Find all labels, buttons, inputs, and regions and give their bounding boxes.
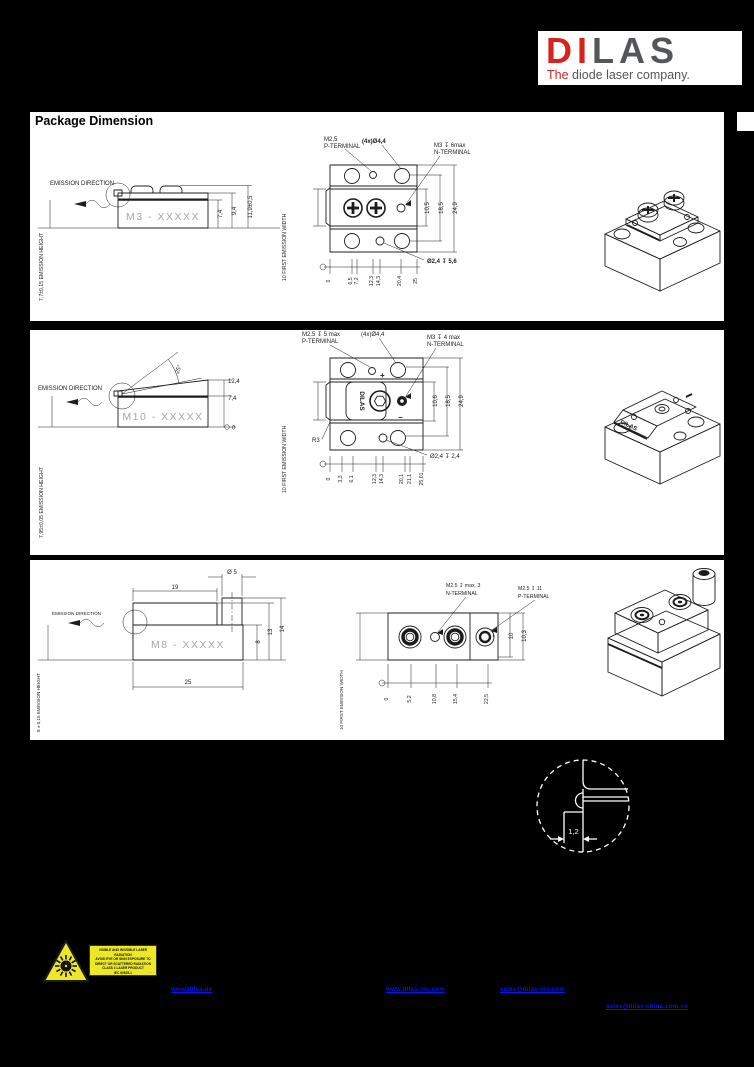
footer-link-sales-china[interactable]: sales@dilas-china.com.cn (606, 1004, 688, 1010)
emitter-detail-view: 1,2 (528, 755, 644, 863)
svg-text:12,3: 12,3 (372, 474, 378, 484)
m3-dim-249: 24,9 (453, 202, 459, 214)
m3-p-terminal-label-1: M2,5 (324, 137, 338, 143)
section-header-bar: Package Dimension (30, 112, 724, 131)
detail-dimension: 1,2 (550, 827, 597, 842)
m10-bottom-scale-labels: 0 3,3 6,1 12,3 14,3 20,1 21,1 25,01 (326, 472, 425, 485)
m10-dim-249: 24,9 (459, 395, 465, 407)
mount-hole (345, 234, 360, 249)
iso-hole (688, 417, 704, 427)
m10-emission-width-label: 10 FIRST EMISSION WIDTH (282, 425, 288, 493)
svg-text:12,3: 12,3 (369, 276, 375, 286)
datasheet-page: DILAS The diode laser company. Package D… (0, 0, 754, 1067)
logo-las: LAS (592, 30, 679, 71)
footer-link-dilas-de[interactable]: www.dilas.de (171, 987, 212, 993)
iso-center-screw (655, 405, 669, 414)
dilas-logo: DILAS The diode laser company. (538, 31, 742, 85)
m3-side-view: EMISSION DIRECTION M3 - XXXXX (38, 181, 280, 301)
m8-dim-pin: Ø 5 (227, 570, 237, 576)
page-title: Package Dimension (30, 112, 724, 131)
m8-model-label: M8 - XXXXX (151, 639, 225, 651)
m10-counterbore-label: Ø2,4 ↧ 2,4 (430, 453, 460, 460)
n-terminal-hole (431, 633, 440, 642)
laser-warning-label: VISIBLE AND INVISIBLE LASER RADIATION AV… (89, 945, 157, 976)
header-corner-block (737, 112, 754, 131)
m8-iso-top-face (615, 590, 708, 633)
svg-text:6,1: 6,1 (349, 475, 355, 482)
iso-terminal-cylinder (693, 569, 715, 606)
m8-top-dimension-lines (356, 613, 525, 688)
iso-center-screw-inner (659, 407, 665, 411)
svg-text:7,2: 7,2 (354, 277, 360, 284)
m8-p-terminal-ring (476, 628, 494, 646)
m3-drawing: EMISSION DIRECTION M3 - XXXXX (30, 131, 724, 321)
m3-package-panel: EMISSION DIRECTION M3 - XXXXX (30, 131, 724, 321)
m3-dim-74: 7,4 (218, 209, 224, 218)
svg-text:14,3: 14,3 (376, 276, 382, 286)
m8-side-view: EMISSION DIRECTION (36, 570, 286, 732)
logo-tagline: The diode laser company. (538, 68, 742, 82)
m10-grooves (330, 379, 423, 423)
m10-n-terminal-label-1: M3 ↧ 4 max (427, 334, 460, 341)
m10-holes-label: (4x)Ø4,4 (361, 332, 385, 338)
m10-dim-74: 7,4 (228, 396, 237, 402)
m3-top-dimension-lines (313, 165, 457, 274)
m10-emission-direction-label: EMISSION DIRECTION (38, 386, 102, 392)
iso-hole (659, 619, 665, 625)
svg-text:20,4: 20,4 (397, 276, 403, 286)
m8-upper-block (133, 603, 217, 625)
m10-iso-view: DILAS (605, 391, 720, 484)
m10-p-terminal-label-2: P-TERMINAL (302, 339, 339, 345)
iso-hole (674, 238, 687, 247)
m10-front-notch (326, 382, 330, 420)
mount-hole (391, 363, 406, 378)
mount-hole (341, 363, 356, 378)
m10-drawing: EMISSION DIRECTION 25° (30, 330, 724, 555)
detail-dim-12: 1,2 (568, 827, 578, 836)
m8-emission-direction-label: EMISSION DIRECTION (52, 611, 101, 616)
label-dots: · · · (149, 971, 154, 975)
m10-model-label: M10 - XXXXX (122, 411, 203, 423)
m8-screw-ring (399, 626, 421, 648)
svg-text:21,1: 21,1 (407, 474, 413, 484)
mount-hole (395, 169, 410, 184)
m10-dilas-mark: DILAS (358, 391, 365, 411)
m3-top-plate (118, 193, 208, 199)
m10-dim-106: 10,6 (433, 395, 439, 407)
m3-emission-height-label: 7,7±0,15 EMISSION HEIGHT (39, 232, 45, 301)
m8-package-panel: EMISSION DIRECTION (30, 560, 724, 740)
svg-text:10,8: 10,8 (432, 694, 438, 704)
m8-emitter-detail-circle (123, 610, 147, 634)
m10-side-view: EMISSION DIRECTION 25° (38, 352, 240, 538)
m10-angle-construction (122, 352, 202, 394)
m10-radius-label: R3 (312, 438, 320, 444)
m8-p-terminal-label-1: M2.5 ↧ 11 (518, 586, 542, 592)
m10-emission-height-label: 7,95±0,05 EMISSION HEIGHT (39, 466, 45, 538)
footer-link-sales-inc[interactable]: sales@dilas-inc.com (500, 987, 565, 993)
detail-lens (576, 793, 584, 808)
m10-package-panel: EMISSION DIRECTION 25° (30, 330, 724, 555)
svg-text:14,3: 14,3 (379, 474, 385, 484)
svg-text:22,5: 22,5 (484, 694, 490, 704)
m10-n-terminal-label-2: N-TERMINAL (427, 342, 464, 348)
m8-emission-width-label: 10 FIRST EMISSION WIDTH (339, 670, 344, 730)
m8-screw-ring (444, 626, 466, 648)
m3-dim-94: 9,4 (232, 206, 238, 215)
iso-hole (674, 398, 679, 403)
plus-mark: + (380, 371, 385, 380)
m8-dim-19: 19 (172, 585, 179, 591)
m8-dim-10: 10 (509, 632, 515, 639)
m10-top-view: + DILAS − M2.5 ↧ 5 max P-TERMINAL (4x)Ø4… (282, 331, 465, 493)
svg-text:0: 0 (326, 279, 332, 282)
m8-emission-height-label: 8 ± 0,15 EMISSION HEIGHT (36, 673, 41, 732)
detail-section-outline (564, 760, 628, 852)
index-hole (379, 434, 387, 442)
iso-hole (688, 223, 704, 233)
m8-dim-13: 13 (268, 628, 274, 635)
m8-dim-25: 25 (185, 680, 192, 686)
svg-text:25: 25 (413, 278, 419, 284)
m8-dim-103: 10,3 (522, 630, 528, 642)
svg-text:25,01: 25,01 (419, 472, 425, 485)
m3-screw-1 (131, 186, 153, 193)
m3-model-label: M3 - XXXXX (126, 211, 200, 223)
m8-bottom-scale-labels: 0 5,2 10,8 15,4 22,5 (384, 694, 490, 704)
m8-dim-14: 14 (280, 625, 286, 632)
m8-n-terminal-label-1: M2.5 ↧ max. 3 (446, 583, 480, 589)
m3-holes-label: (4x)Ø4,4 (362, 139, 386, 145)
m10-dim-0: 0 (232, 426, 236, 432)
m8-n-terminal-label-2: N-TERMINAL (446, 591, 478, 597)
m3-bottom-scale-labels: 0 6,5 7,2 12,3 14,3 20,4 25 (326, 276, 419, 286)
m10-angle-label: 25° (174, 364, 184, 375)
mount-hole (395, 234, 410, 249)
m3-dim-119: 11,9±0,5 (248, 195, 254, 219)
index-hole (376, 237, 384, 245)
m3-dim-105: 10,5 (425, 202, 431, 214)
m8-p-terminal-label-2: P-TERMINAL (518, 594, 550, 600)
minus-mark: − (398, 413, 403, 422)
m8-drawing: EMISSION DIRECTION (30, 560, 724, 740)
logo-di: DI (546, 30, 592, 71)
m3-emission-width-label: 10 FIRST EMISSION WIDTH (282, 213, 288, 281)
svg-text:3,3: 3,3 (338, 475, 344, 482)
svg-text:0: 0 (384, 697, 390, 700)
emission-arrow-icon (66, 399, 78, 405)
m3-iso-view (605, 191, 720, 291)
m8-top-view: M2.5 ↧ max. 3 N-TERMINAL M2.5 ↧ 11 P-TER… (339, 583, 550, 730)
m3-n-terminal-label-2: N-TERMINAL (434, 150, 471, 156)
iso-screw (631, 608, 653, 623)
emission-arrow-icon (74, 201, 86, 207)
m3-counterbore-label: Ø2,4 ↧ 5,6 (427, 258, 457, 265)
svg-text:5,2: 5,2 (407, 695, 413, 702)
m10-dim-185: 18,5 (446, 395, 452, 407)
m3-dim-185: 18,5 (439, 202, 445, 214)
m10-dim-124: 12,4 (228, 379, 240, 385)
iso-screw (638, 203, 658, 222)
n-terminal-center (400, 399, 404, 403)
laser-warning-icon (42, 938, 90, 984)
hex-socket (375, 396, 386, 406)
n-terminal-hole (397, 204, 405, 212)
mount-hole (341, 431, 356, 446)
mount-hole (345, 169, 360, 184)
m10-p-terminal-label-1: M2.5 ↧ 5 max (302, 331, 340, 338)
m8-leader-lines (438, 597, 535, 632)
footer-link-dilas-inc[interactable]: www.dilas-inc.com (386, 987, 445, 993)
m10-wedge-top (118, 380, 208, 396)
m10-center-screw (370, 391, 390, 411)
p-terminal-hole (369, 368, 376, 375)
m3-n-terminal-label-1: M3 ↧ 6max (434, 142, 465, 149)
m3-top-view: M2,5 P-TERMINAL (4x)Ø4,4 M3 ↧ 6max N-TER… (282, 137, 471, 286)
m8-iso-view (608, 569, 720, 697)
iso-hole (674, 432, 686, 440)
iso-hole (614, 229, 630, 239)
m3-p-terminal-label-2: P-TERMINAL (324, 144, 361, 150)
mount-hole (391, 431, 406, 446)
m3-screw-2 (160, 186, 182, 193)
p-terminal-hole (370, 172, 377, 179)
m3-front-notch (326, 188, 330, 226)
m10-lens-block (346, 382, 386, 420)
emission-arrow-icon (68, 620, 80, 626)
m3-emission-direction-label: EMISSION DIRECTION (50, 181, 114, 187)
m3-screws-top (344, 199, 385, 217)
svg-text:0: 0 (326, 477, 332, 480)
logo-wordmark: DILAS (538, 31, 742, 68)
m8-side-dimension-lines (38, 574, 286, 690)
svg-text:20,1: 20,1 (399, 474, 405, 484)
svg-text:15,4: 15,4 (453, 694, 459, 704)
